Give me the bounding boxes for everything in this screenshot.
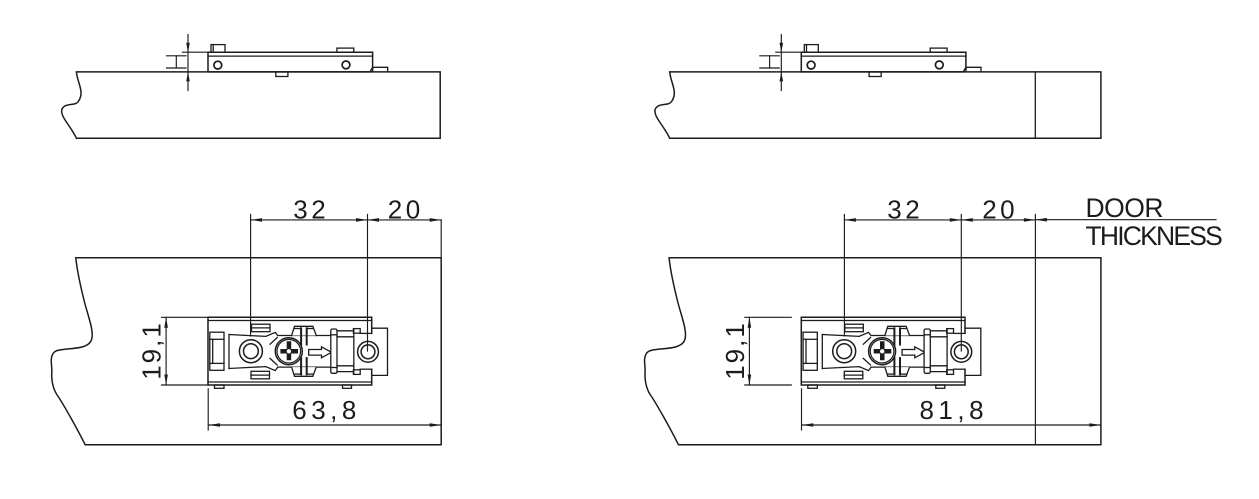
svg-text:63,8: 63,8 [292,395,361,425]
svg-text:81,8: 81,8 [919,395,988,425]
svg-text:19,1: 19,1 [720,321,750,380]
svg-text:20: 20 [982,194,1018,224]
svg-text:DOOR: DOOR [1086,193,1164,223]
svg-text:32: 32 [887,194,923,224]
svg-text:THICKNESS: THICKNESS [1086,221,1223,251]
svg-text:19,1: 19,1 [137,321,167,380]
svg-text:20: 20 [388,194,424,224]
svg-text:32: 32 [293,194,329,224]
